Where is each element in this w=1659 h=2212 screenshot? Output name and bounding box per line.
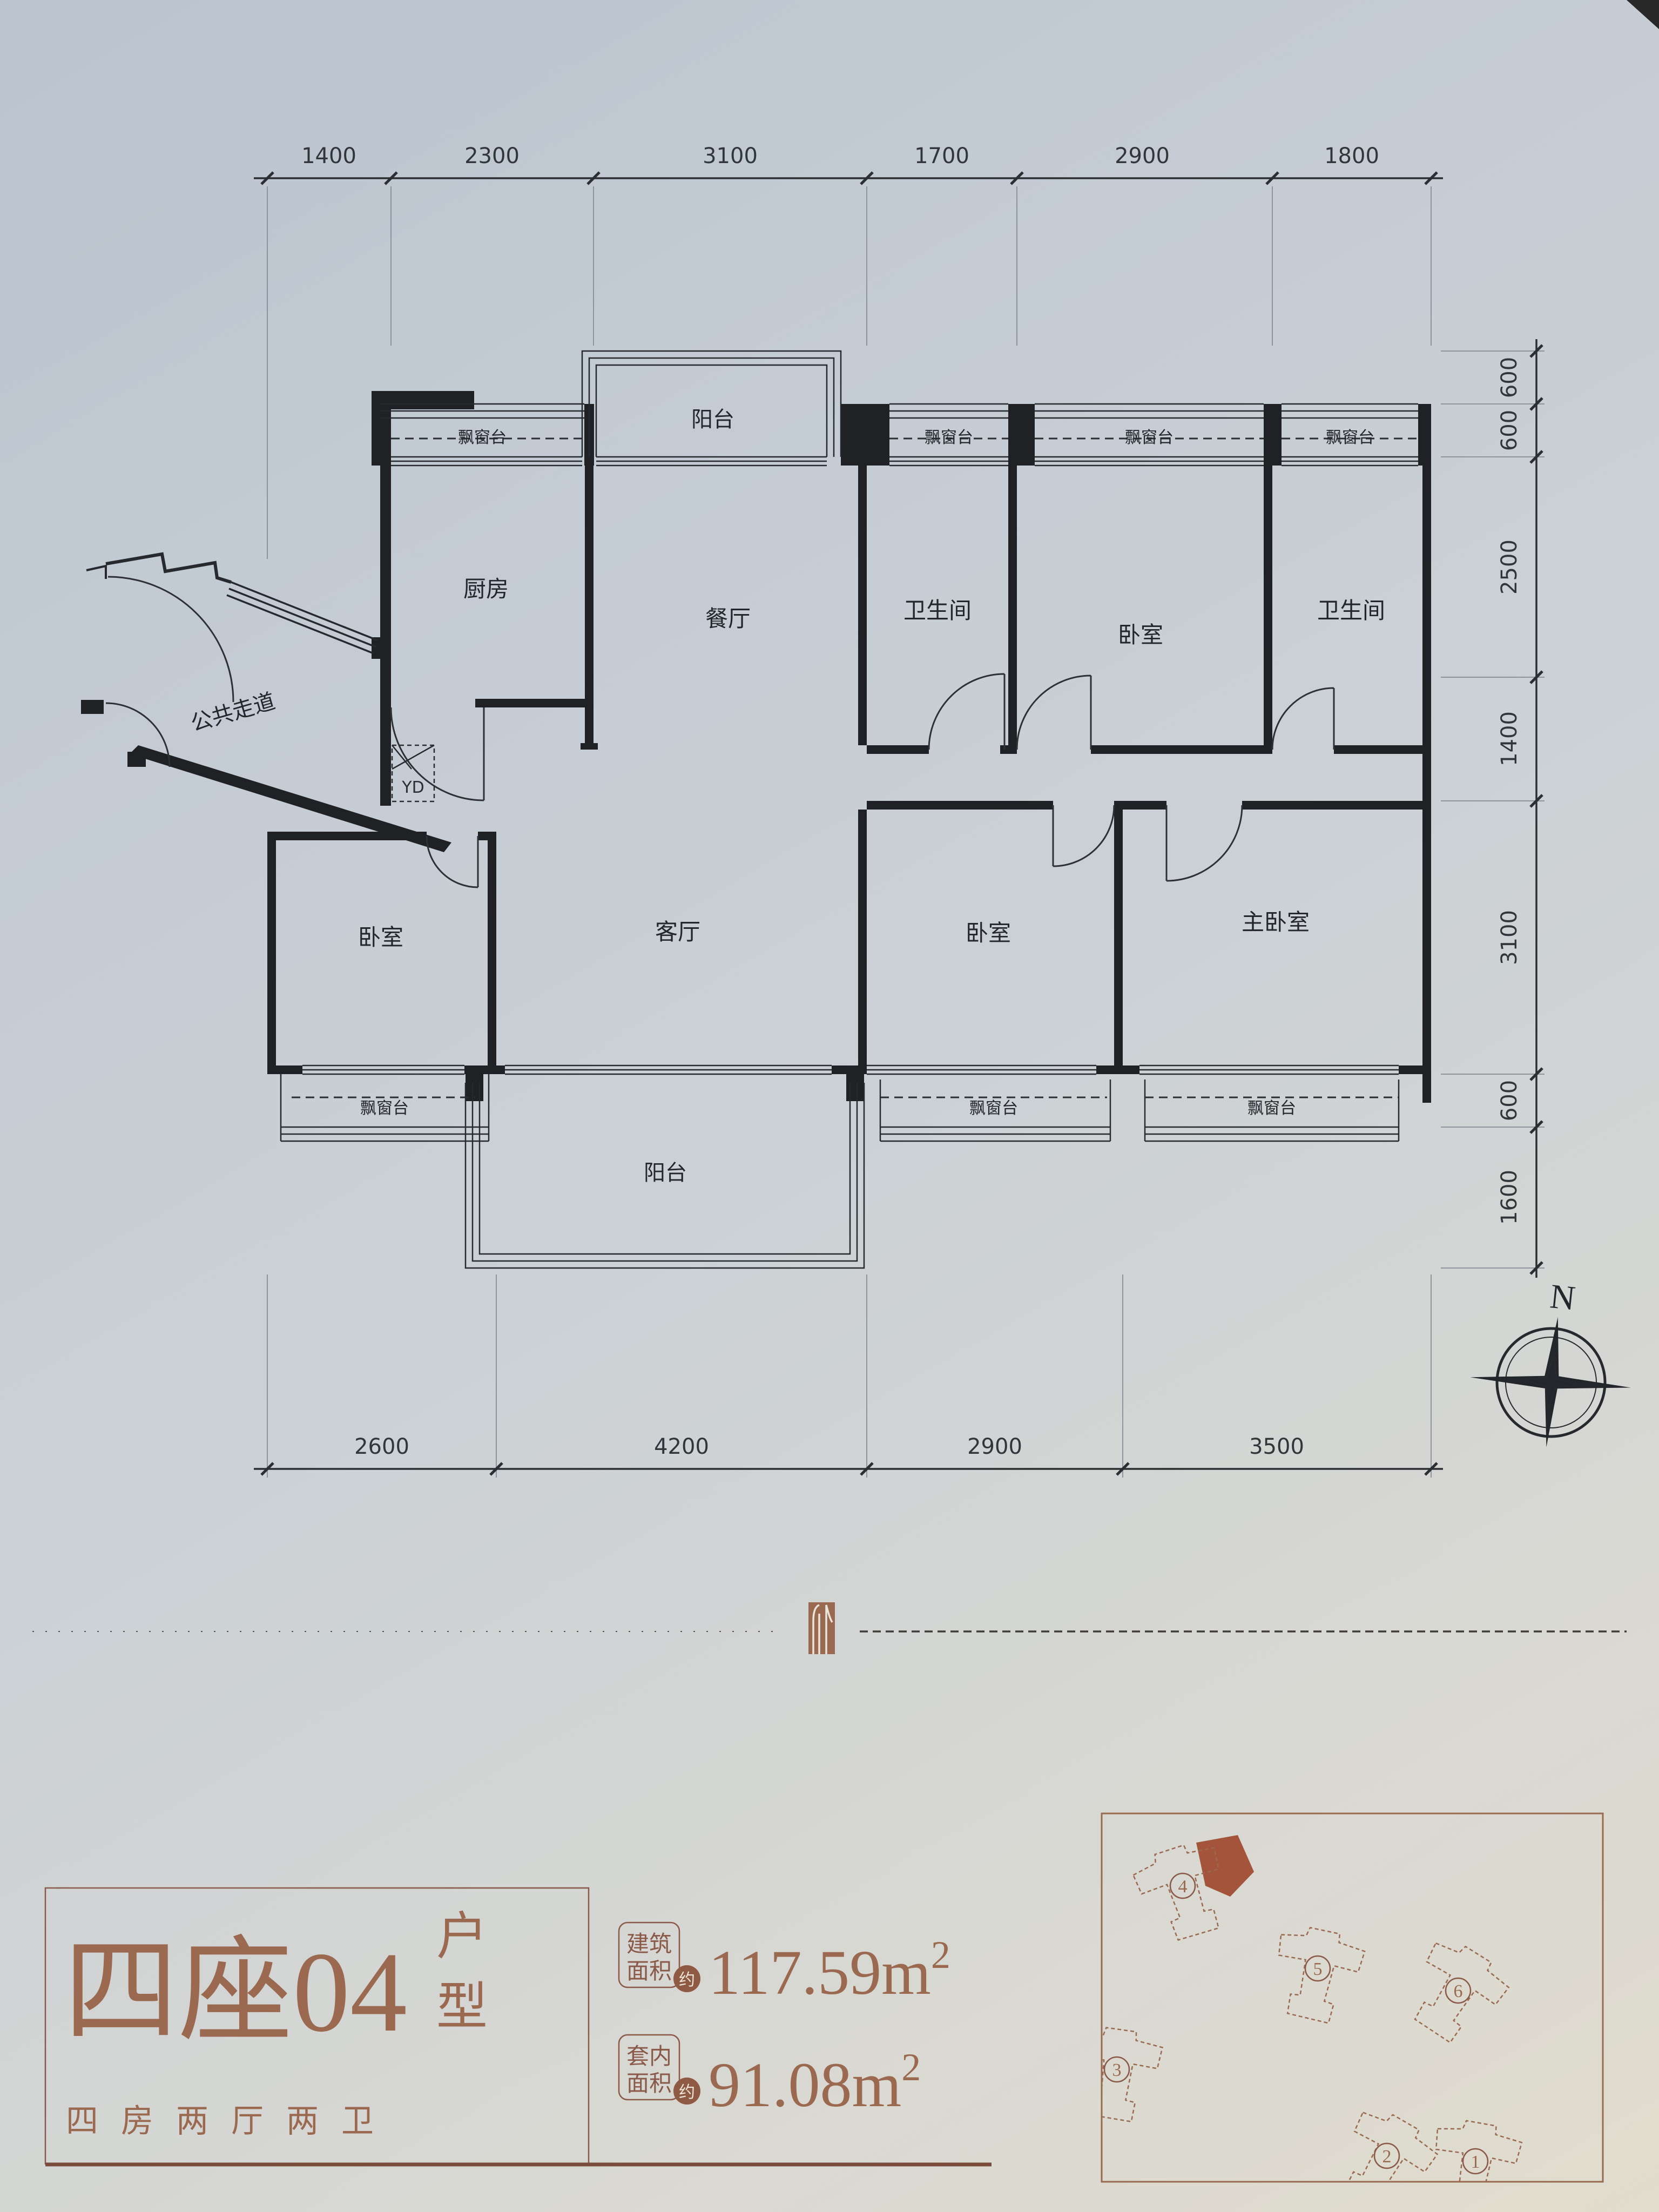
unit-title-suffix-1: 户 [436, 1908, 488, 1965]
label-bedroom-top: 卧室 [1118, 622, 1163, 648]
dim-bottom-2: 4200 [654, 1434, 709, 1459]
dim-top-3: 3100 [703, 144, 758, 168]
area-info: 建筑 面积 约 117.59m2 套内 面积 约 91.08m2 [619, 1923, 950, 2120]
site-plan-inset: 4 5 6 3 2 1 [1067, 1813, 1603, 2212]
inner-area-value: 91.08m2 [709, 2046, 921, 2120]
dimension-right: 600 600 2500 1400 3100 600 1600 [1441, 339, 1545, 1278]
gross-area-value: 117.59m2 [709, 1933, 950, 2008]
approx-badge-2: 约 [679, 2083, 695, 2101]
svg-text:面积: 面积 [626, 1958, 672, 1984]
unit-location-highlight [1196, 1835, 1254, 1897]
dim-right-6: 600 [1497, 1080, 1522, 1121]
label-dining: 餐厅 [705, 606, 751, 631]
svg-text:飘窗台: 飘窗台 [925, 429, 973, 447]
dimension-bottom: 2600 4200 2900 3500 [254, 1274, 1443, 1478]
site-building-2: 2 [1325, 2101, 1444, 2212]
svg-text:飘窗台: 飘窗台 [1247, 1100, 1296, 1117]
label-bedroom-left: 卧室 [358, 925, 403, 950]
label-balcony-bottom: 阳台 [644, 1161, 687, 1185]
svg-text:飘窗台: 飘窗台 [969, 1100, 1018, 1117]
svg-text:面积: 面积 [626, 2071, 672, 2096]
dim-right-4: 1400 [1497, 711, 1522, 766]
walls [81, 391, 1431, 1103]
meter-box-label: YD [401, 778, 424, 797]
label-bath-2: 卫生间 [1317, 598, 1385, 623]
room-labels: 厨房 餐厅 卫生间 卧室 卫生间 公共走道 卧室 客厅 卧室 主卧室 阳台 阳台 [188, 408, 1385, 1185]
svg-text:飘窗台: 飘窗台 [360, 1100, 409, 1117]
site-building-1: 1 [1424, 2116, 1523, 2212]
dim-top-1: 1400 [301, 144, 356, 168]
brand-logo [32, 1602, 1627, 1654]
compass-rose: N [1464, 1269, 1641, 1455]
svg-text:套内: 套内 [626, 2044, 672, 2069]
svg-text:4: 4 [1178, 1877, 1188, 1897]
dim-bottom-3: 2900 [967, 1434, 1022, 1459]
dim-top-2: 2300 [464, 144, 520, 168]
svg-text:飘窗台: 飘窗台 [458, 429, 507, 447]
bay-labels: 飘窗台 飘窗台 飘窗台 飘窗台 飘窗台 飘窗台 飘窗台 [360, 429, 1374, 1117]
dim-right-3: 2500 [1497, 539, 1522, 595]
label-balcony-top: 阳台 [691, 408, 734, 431]
label-bedroom-mid: 卧室 [966, 920, 1011, 946]
svg-text:1: 1 [1471, 2152, 1480, 2172]
dim-right-1: 600 [1497, 357, 1522, 398]
svg-text:2: 2 [1382, 2147, 1392, 2167]
approx-badge-1: 约 [679, 1971, 695, 1989]
unit-subtitle: 四房两厅两卫 [66, 2103, 396, 2139]
svg-text:6: 6 [1454, 1981, 1463, 2001]
compass-north-label: N [1548, 1277, 1577, 1317]
site-building-3: 3 [1067, 2024, 1164, 2125]
unit-title-suffix-2: 型 [436, 1978, 488, 2035]
dim-right-5: 3100 [1497, 910, 1522, 965]
dim-top-5: 2900 [1115, 144, 1170, 168]
label-kitchen: 厨房 [463, 576, 509, 602]
floor-plan-poster: YD 厨房 餐厅 卫生间 卧室 卫生间 公共走道 卧室 客厅 卧室 主卧室 阳台… [0, 0, 1659, 2212]
dim-bottom-4: 3500 [1249, 1434, 1304, 1459]
dim-right-2: 600 [1497, 410, 1522, 451]
svg-text:飘窗台: 飘窗台 [1326, 429, 1374, 447]
label-bath-1: 卫生间 [903, 598, 972, 623]
balcony-top [582, 351, 841, 457]
title-block: 四座04 户 型 四房两厅两卫 建筑 面积 约 117.59m2 套内 面积 约… [45, 1888, 992, 2164]
label-master-bedroom: 主卧室 [1242, 909, 1310, 935]
photo-edge [1627, 0, 1659, 29]
svg-text:飘窗台: 飘窗台 [1125, 429, 1174, 447]
bay-windows-top [380, 404, 1418, 439]
site-building-6: 6 [1395, 1932, 1515, 2054]
bay-windows-bottom [281, 1074, 1399, 1141]
site-building-5: 5 [1265, 1922, 1367, 2027]
unit-title: 四座04 [64, 1928, 407, 2055]
svg-text:3: 3 [1112, 2060, 1122, 2080]
dim-bottom-1: 2600 [354, 1434, 409, 1459]
floor-plan: YD 厨房 餐厅 卫生间 卧室 卫生间 公共走道 卧室 客厅 卧室 主卧室 阳台… [81, 351, 1431, 1268]
dim-right-7: 1600 [1497, 1170, 1522, 1225]
dim-top-4: 1700 [914, 144, 969, 168]
label-living: 客厅 [655, 919, 700, 945]
dim-top-6: 1800 [1324, 144, 1379, 168]
meter-box: YD [392, 745, 434, 801]
svg-text:5: 5 [1313, 1959, 1323, 1979]
svg-text:建筑: 建筑 [626, 1931, 672, 1957]
public-corridor [86, 554, 378, 767]
